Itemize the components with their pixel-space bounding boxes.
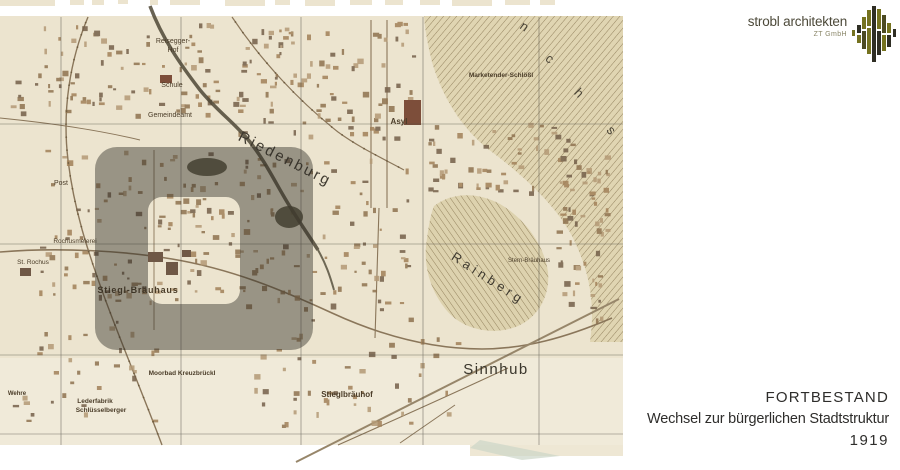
map-label-sinnhub: Sinnhub	[463, 361, 529, 378]
strobl-logo-icon	[852, 5, 896, 63]
strobl-logo-text: strobl architekten ZT GmbH	[748, 15, 847, 38]
map-label-moorbad-kreuzbrueckl: Moorbad Kreuzbrückl	[149, 370, 216, 377]
map-label-st-rochus: St. Rochus	[17, 259, 50, 266]
map-label-schule: Schule	[161, 82, 183, 89]
map-label-post: Post	[54, 180, 68, 187]
map-label-stieglbraeuhof: Stieglbräuhof	[321, 390, 373, 399]
logo-suffix: ZT GmbH	[748, 31, 847, 38]
map-label-schluesselberger: Schlüsselberger	[76, 407, 127, 414]
map-sheet-torn-edge	[0, 0, 555, 6]
historical-map-1919: RiedenburgRainbergSinnhubnchsAsylStiegl-…	[0, 0, 623, 465]
map-label-reisegger-hof-line1: Reisegger-	[156, 38, 191, 45]
map-label-wehre: Wehre	[8, 391, 27, 397]
caption-subtitle: Wechsel zur bürgerlichen Stadtstruktur	[647, 410, 889, 429]
map-label-stern-braeuhaus: Stern-Bräuhaus	[508, 258, 550, 264]
logo-name: strobl architekten	[748, 15, 847, 30]
caption-title: FORTBESTAND	[647, 389, 889, 408]
map-label-lederfabrik: Lederfabrik	[77, 398, 113, 405]
map-label-asyl: Asyl	[391, 117, 408, 126]
presentation-slide: RiedenburgRainbergSinnhubnchsAsylStiegl-…	[0, 0, 900, 465]
caption-year: 1919	[647, 432, 889, 449]
slide-caption: FORTBESTAND Wechsel zur bürgerlichen Sta…	[647, 389, 889, 449]
map-label-rochusmeierei: Rochusmeierei	[53, 238, 96, 245]
map-label-gemeindeamt: Gemeindeamt	[148, 112, 192, 119]
strobl-logo: strobl architekten ZT GmbH	[748, 5, 896, 63]
map-label-marketender-schloessl: Marketender-Schlößl	[469, 72, 533, 79]
map-canvas: RiedenburgRainbergSinnhubnchsAsylStiegl-…	[0, 0, 623, 465]
map-label-reisegger-hof-line2: Hof	[168, 47, 179, 54]
